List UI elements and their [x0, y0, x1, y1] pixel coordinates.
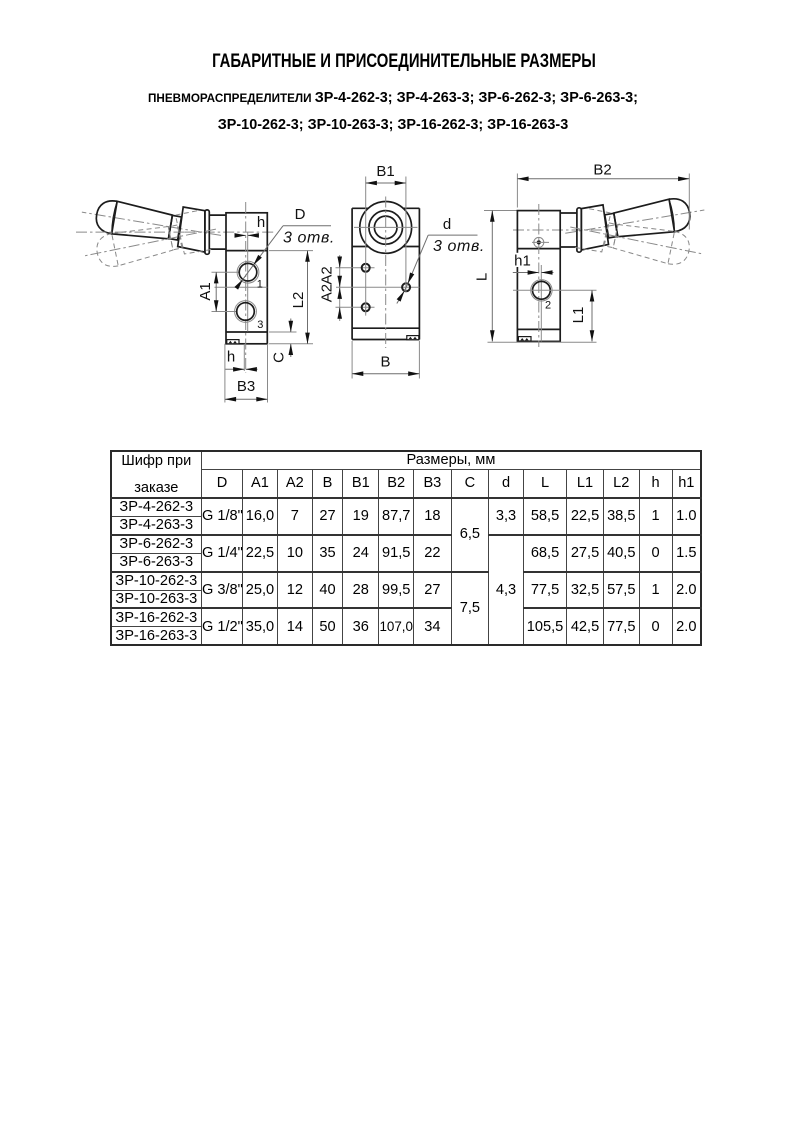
svg-text:L2: L2	[290, 292, 307, 309]
svg-text:B2: B2	[593, 162, 611, 179]
svg-text:3: 3	[257, 319, 263, 331]
svg-text:D: D	[295, 206, 306, 223]
svg-text:2: 2	[545, 300, 551, 312]
svg-text:h: h	[257, 214, 265, 231]
svg-text:L: L	[474, 273, 491, 281]
svg-text:B1: B1	[376, 163, 394, 180]
svg-text:A2: A2	[319, 284, 336, 302]
svg-text:h: h	[227, 349, 235, 366]
svg-text:3 отв.: 3 отв.	[283, 230, 335, 247]
svg-text:C: C	[270, 352, 287, 363]
svg-text:d: d	[443, 216, 451, 233]
svg-text:3 отв.: 3 отв.	[433, 238, 485, 255]
svg-text:L1: L1	[570, 307, 587, 324]
svg-text:A1: A1	[197, 282, 214, 300]
svg-text:B3: B3	[237, 378, 255, 395]
svg-text:A2: A2	[319, 266, 336, 284]
svg-text:B: B	[380, 354, 390, 371]
svg-text:1: 1	[257, 278, 263, 290]
svg-text:h1: h1	[514, 252, 531, 269]
